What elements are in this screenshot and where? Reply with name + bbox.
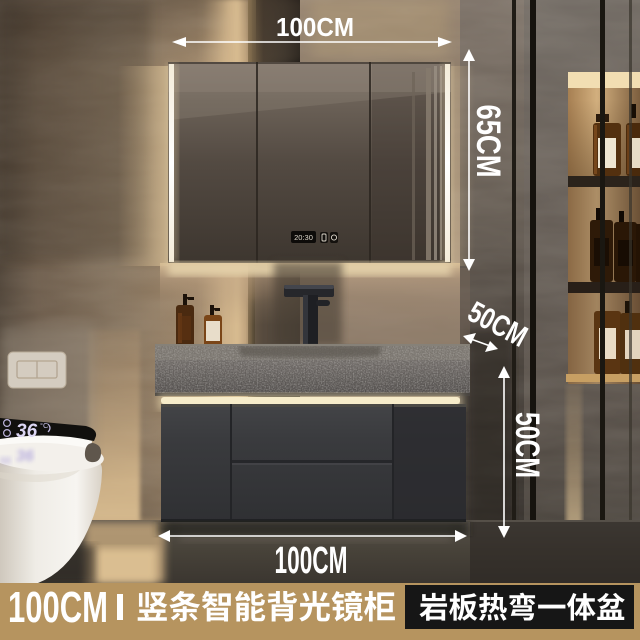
svg-text:100CM: 100CM [276, 12, 354, 42]
svg-text:65CM: 65CM [469, 105, 507, 178]
svg-text:100CM: 100CM [275, 540, 348, 582]
svg-text:°C: °C [40, 421, 49, 430]
svg-text:50CM: 50CM [508, 412, 546, 478]
svg-text:36: 36 [16, 421, 38, 442]
svg-text:20:30: 20:30 [294, 233, 313, 242]
svg-text:100CM: 100CM [8, 583, 108, 632]
svg-text:36: 36 [16, 448, 34, 465]
svg-text:88: 88 [0, 456, 12, 467]
